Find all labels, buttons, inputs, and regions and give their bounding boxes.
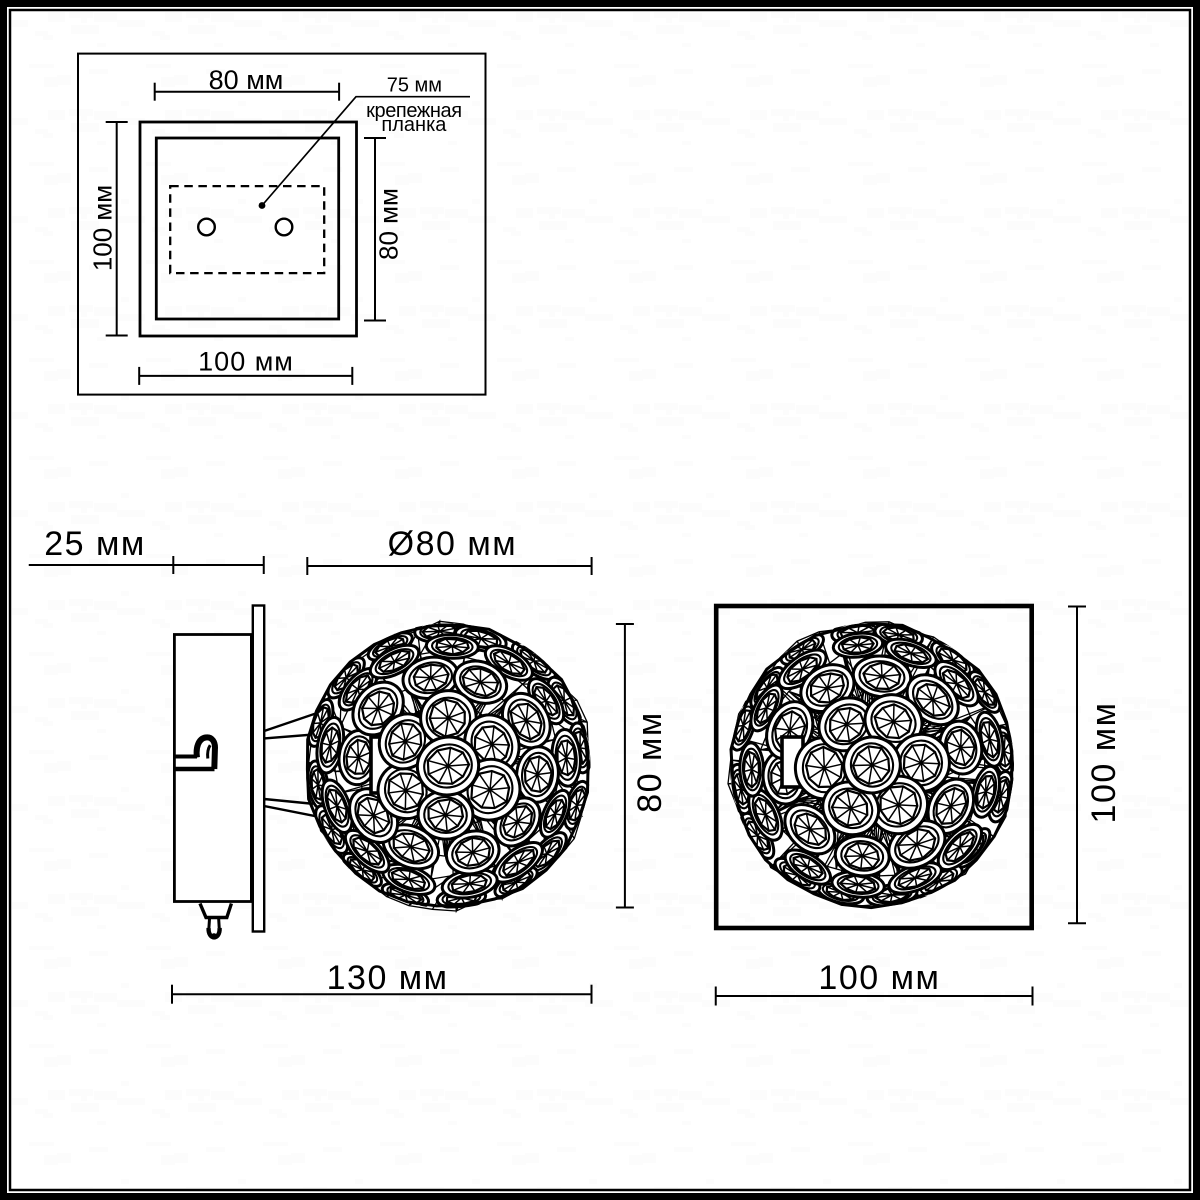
- svg-text:80 мм: 80 мм: [631, 711, 669, 813]
- svg-text:Ø80 мм: Ø80 мм: [388, 525, 517, 563]
- svg-text:75 мм: 75 мм: [387, 75, 442, 97]
- svg-text:планка: планка: [381, 114, 447, 136]
- svg-text:100 мм: 100 мм: [198, 347, 294, 377]
- svg-text:100 мм: 100 мм: [1085, 702, 1123, 824]
- svg-text:100 мм: 100 мм: [818, 959, 940, 997]
- svg-text:130 мм: 130 мм: [327, 959, 449, 997]
- svg-text:80 мм: 80 мм: [209, 65, 284, 95]
- svg-text:80 мм: 80 мм: [373, 188, 403, 260]
- svg-text:25 мм: 25 мм: [44, 525, 146, 563]
- svg-text:100 мм: 100 мм: [88, 185, 118, 271]
